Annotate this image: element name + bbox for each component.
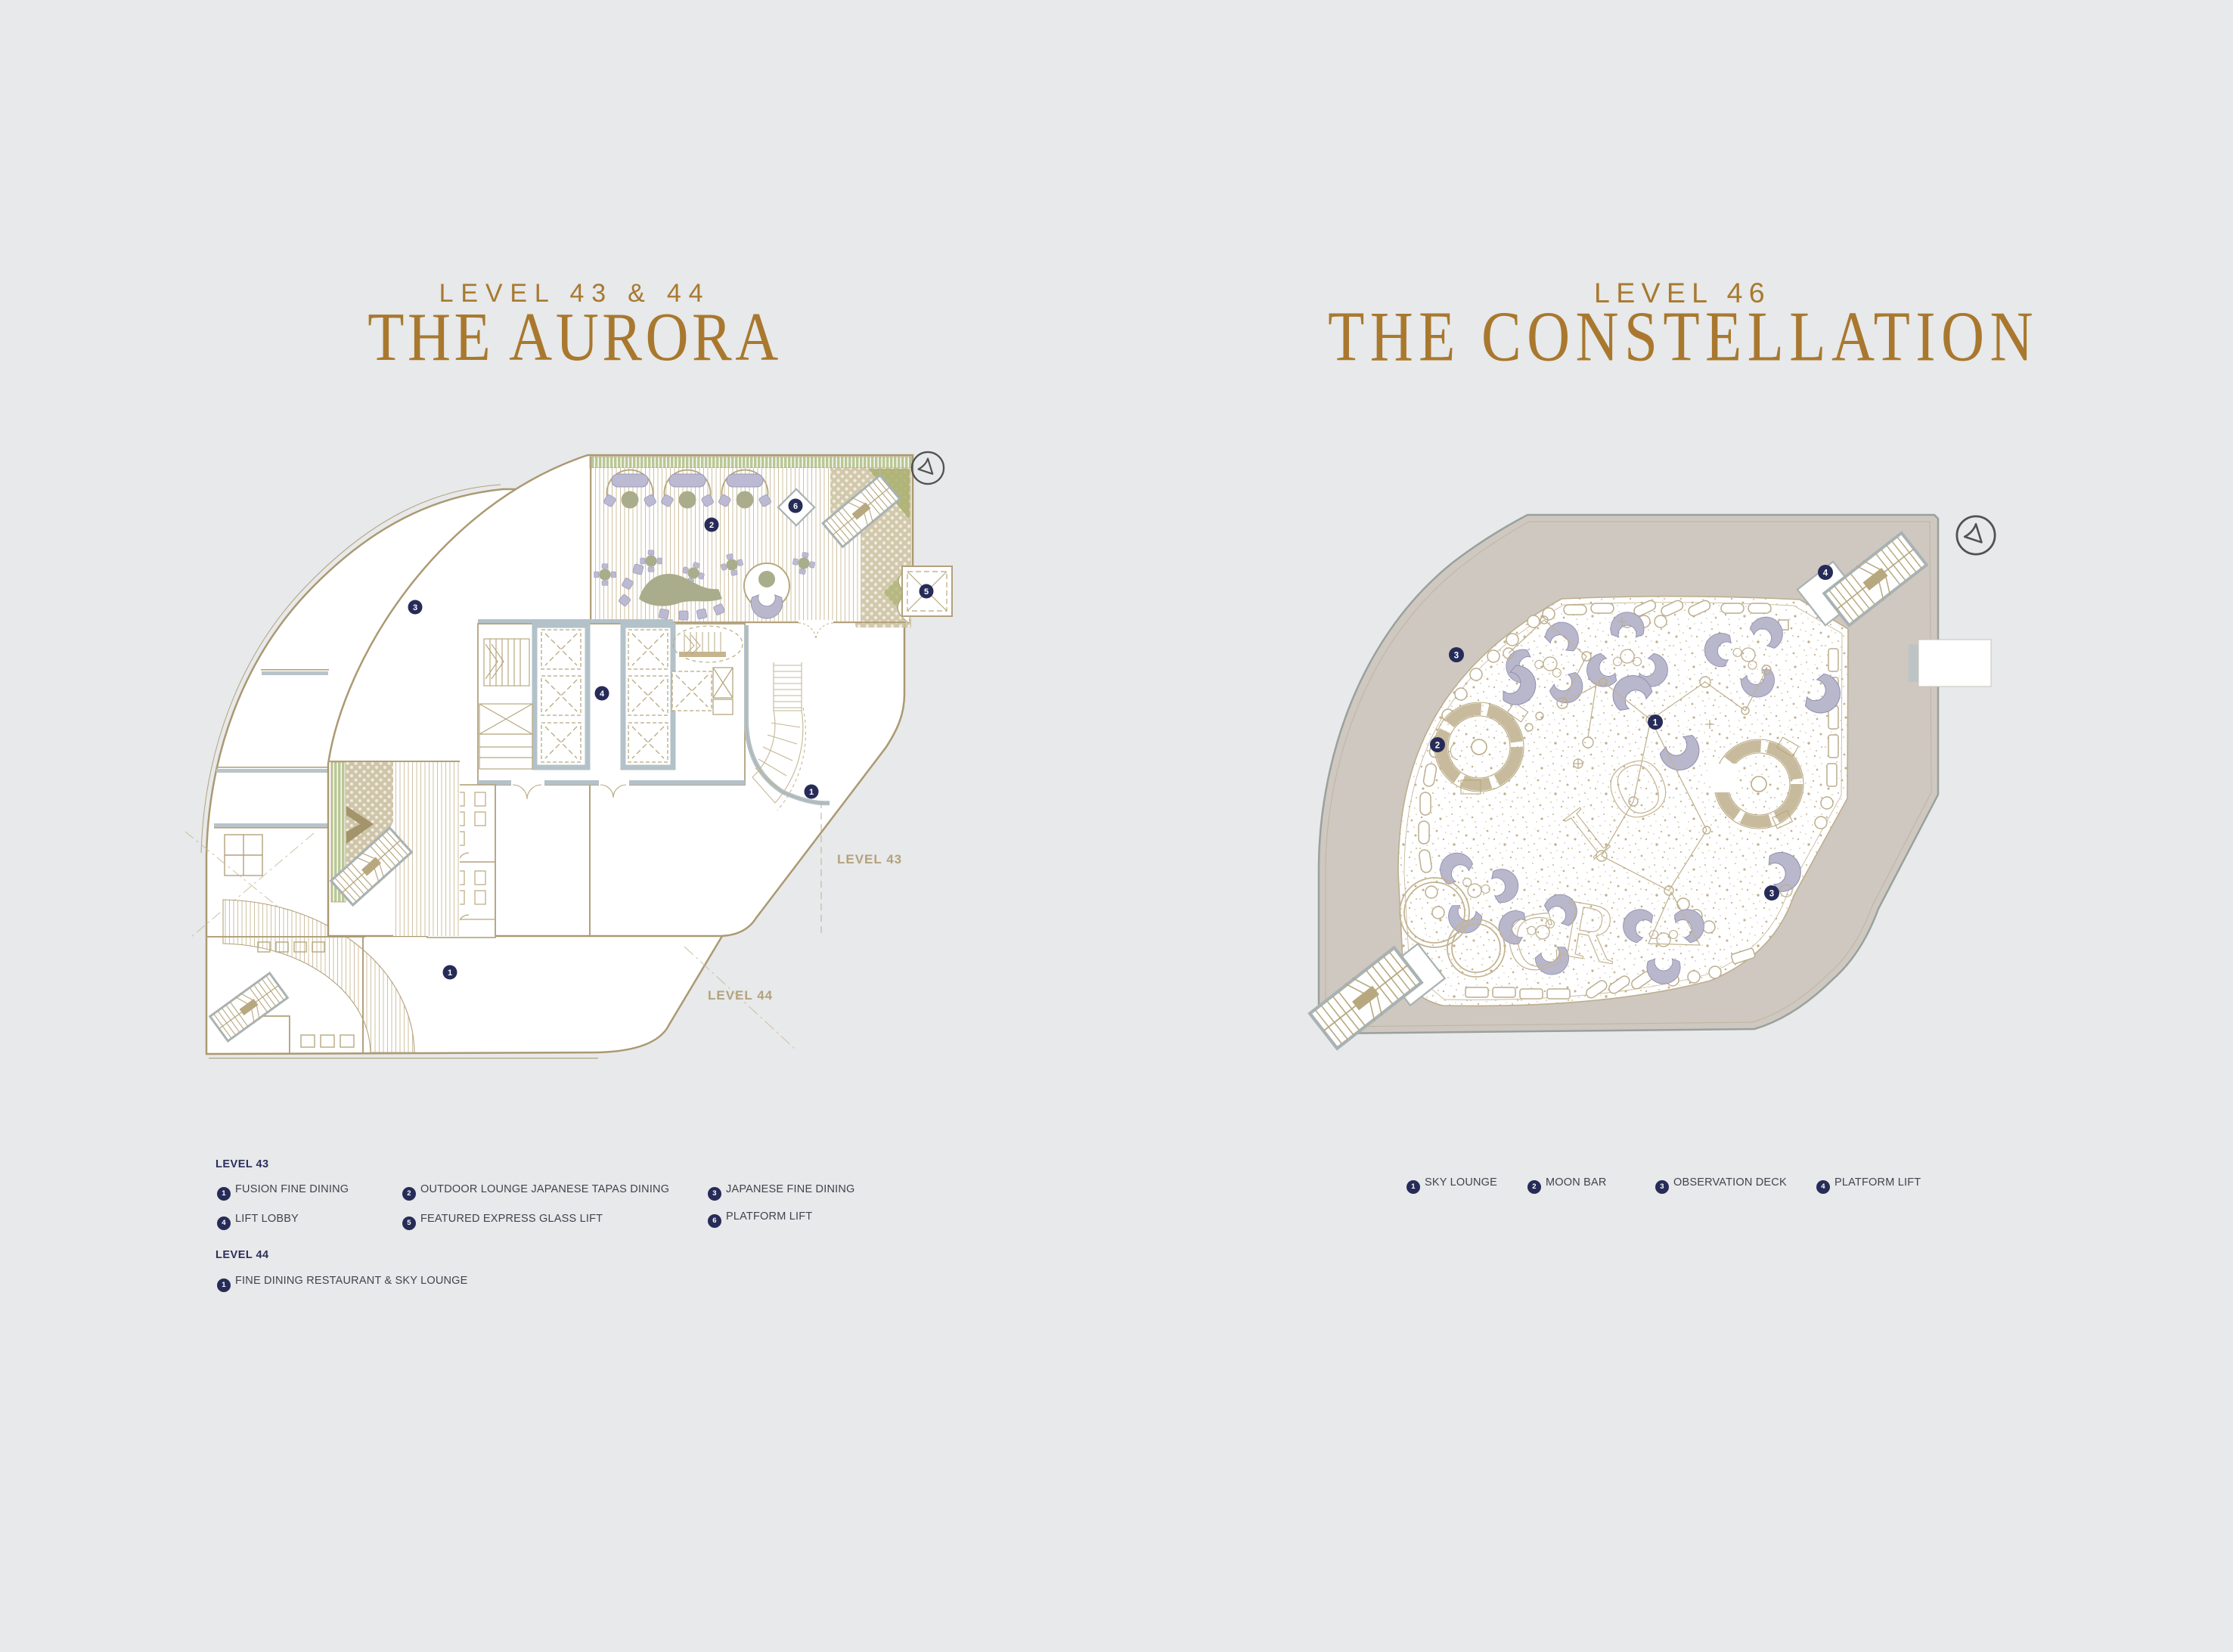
svg-text:3: 3 [1454, 652, 1459, 661]
svg-text:4: 4 [600, 690, 605, 699]
svg-text:2: 2 [1435, 742, 1440, 751]
svg-text:1: 1 [809, 788, 814, 797]
svg-text:1: 1 [1653, 719, 1658, 728]
svg-text:3: 3 [1769, 890, 1774, 899]
svg-text:2: 2 [709, 521, 714, 530]
svg-text:5: 5 [924, 587, 929, 597]
svg-text:3: 3 [413, 603, 417, 612]
svg-text:1: 1 [448, 969, 452, 978]
svg-text:6: 6 [793, 502, 798, 511]
svg-text:4: 4 [1823, 569, 1828, 578]
